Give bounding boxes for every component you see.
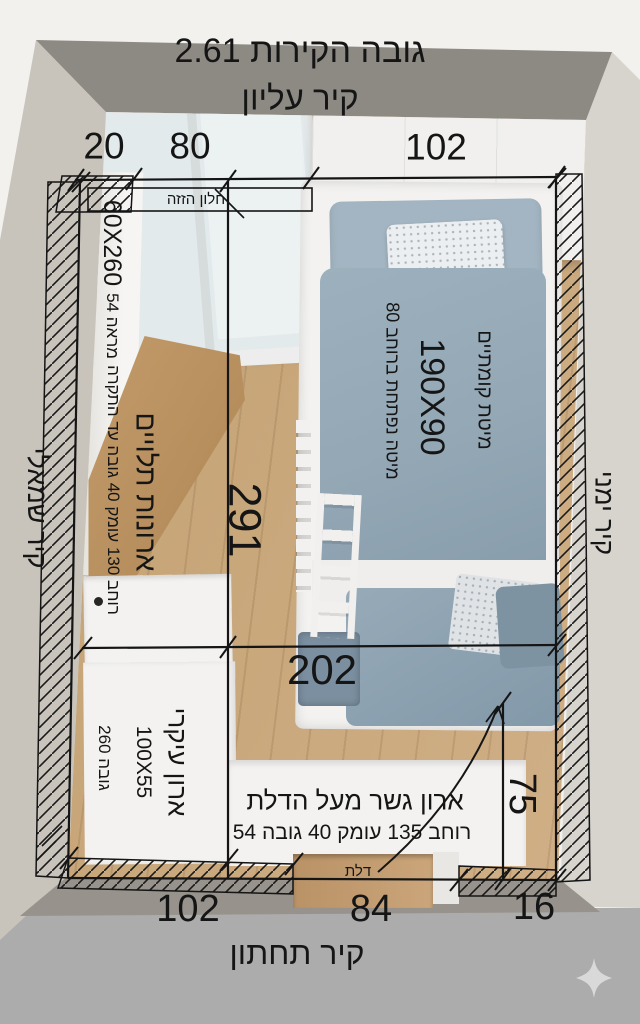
- bottom-dim-84: 84: [350, 890, 392, 930]
- mirror-label: מראה 54: [103, 293, 121, 359]
- top-dim-20: 20: [83, 128, 124, 167]
- hanging-cabinets-details: רוחב 130 עומק 40 גובה עד התקרה: [104, 365, 122, 615]
- room-length-dim: 291: [221, 482, 268, 557]
- mirror-size: 60X260: [99, 200, 125, 286]
- door-label: דלת: [345, 864, 371, 880]
- sparkle-icon[interactable]: [576, 958, 612, 998]
- bunk-ladder: [310, 493, 361, 639]
- door-clearance-dim: 75: [501, 773, 541, 815]
- bridge-cabinet-details: רוחב 135 עומק 40 גובה 54: [233, 822, 472, 844]
- top-dim-102: 102: [405, 129, 467, 168]
- room-width-dim: 202: [287, 648, 357, 692]
- bunk-bed-size: 190X90: [413, 338, 449, 455]
- bottom-dim-16: 16: [513, 888, 555, 928]
- main-closet-label: ארון עיקרי: [163, 708, 190, 817]
- top-dim-80: 80: [169, 128, 210, 167]
- bunk-bed-label: מיטת קומתיים: [474, 330, 495, 449]
- lower-bed-pillow: [495, 583, 565, 669]
- page-title: גובה הקירות 2.61: [174, 34, 425, 70]
- window-label: חלון הזזה: [167, 192, 225, 208]
- bunk-bed-pullout: מיטה נפתחת ברוחב 80: [383, 302, 402, 480]
- top-wall-label: קיר עליון: [241, 82, 358, 117]
- left-wall-label: קיר שמאלי: [23, 448, 51, 569]
- right-wall-label: קיר ימני: [590, 471, 617, 555]
- dresser-knob: [94, 597, 103, 606]
- bottom-wall-label: קיר תחתון: [229, 937, 364, 971]
- main-closet-height: גובה 260: [95, 725, 113, 791]
- floorplan-image: גובה הקירות 2.61 קיר עליון 20 80 102 חלו…: [0, 0, 640, 1024]
- bed-rail: [296, 420, 311, 592]
- bridge-cabinet-label: ארון גשר מעל הדלת: [246, 787, 463, 814]
- door-side-wall-piece: [433, 852, 459, 904]
- main-closet-size: 100X55: [132, 726, 154, 798]
- hanging-cabinets-label: ארונות תלויים: [131, 413, 160, 572]
- bottom-dim-102: 102: [156, 890, 219, 930]
